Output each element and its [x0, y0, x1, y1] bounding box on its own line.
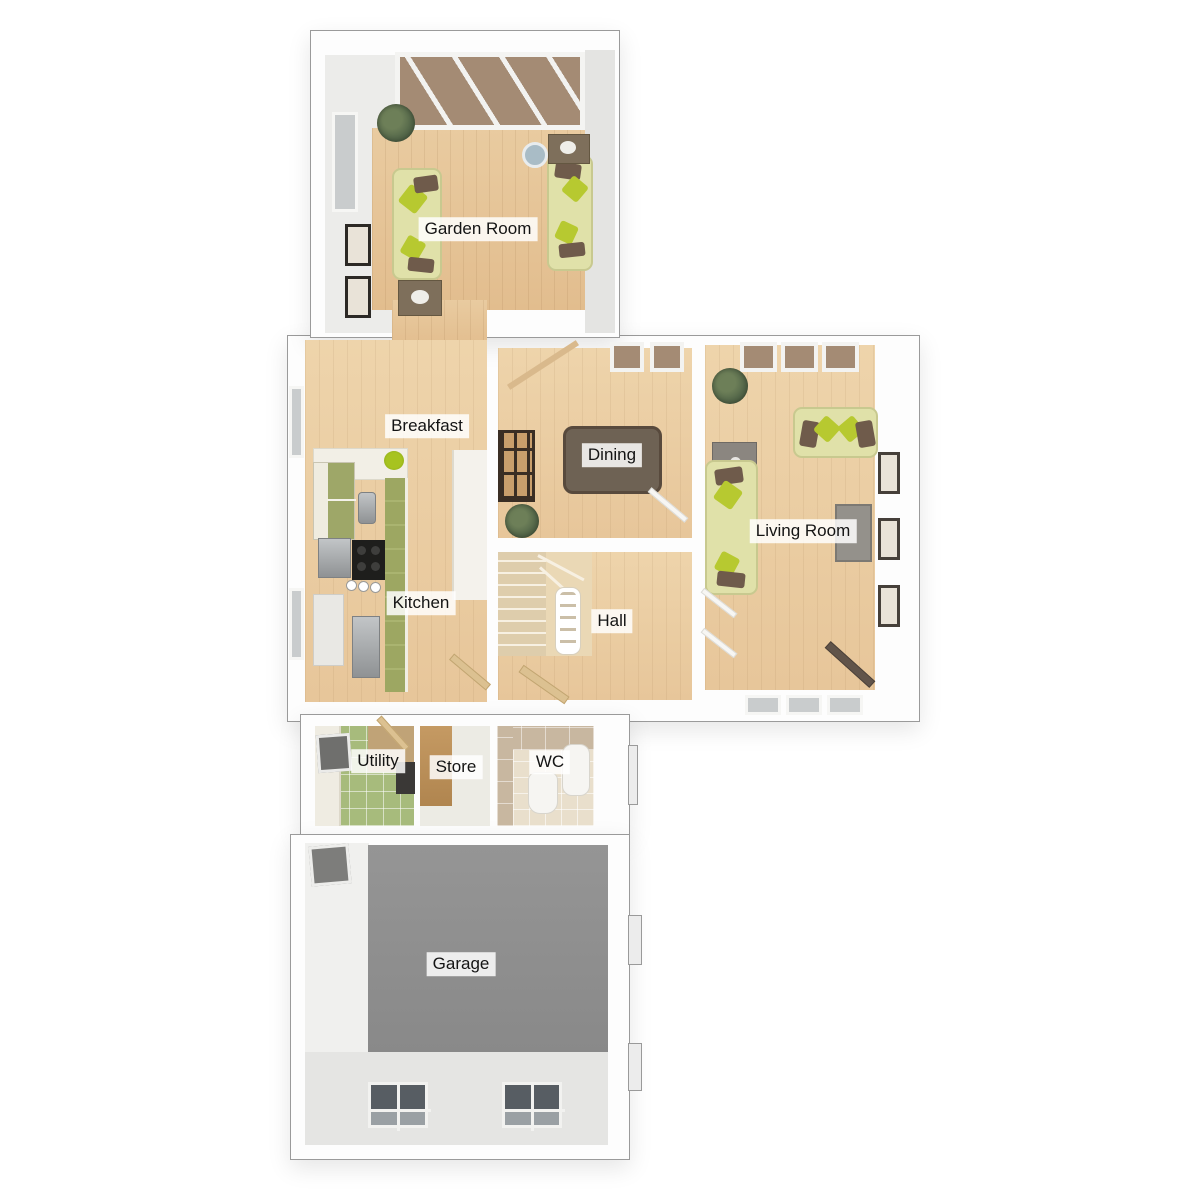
dining-roof-window: [610, 342, 644, 372]
floorplan-canvas: Garden Room Breakfast Dining Living Room…: [0, 0, 1200, 1200]
door-rail: [371, 1109, 431, 1112]
kitchen-unit-run: [385, 478, 408, 692]
living-wall-picture-frame: [878, 518, 900, 560]
stair-railing: [556, 588, 580, 654]
living-bottom-window: [827, 695, 863, 715]
burner: [357, 546, 366, 555]
living-bottom-window: [745, 695, 781, 715]
breakfast-left-window: [289, 386, 304, 458]
sofa-cushion: [407, 257, 434, 274]
garden-wall-picture-frame: [345, 276, 371, 318]
wc-outer-step: [628, 745, 638, 805]
garden-room-skylight: [395, 52, 585, 130]
wc-toilet: [528, 772, 558, 814]
kitchen-island: [452, 450, 487, 600]
sofa-cushion: [558, 242, 585, 259]
staircase: [498, 552, 592, 656]
kitchen-fruit-bowl: [384, 451, 404, 470]
garage-window: [308, 843, 351, 886]
living-roof-window: [822, 342, 859, 372]
living-plant: [712, 368, 748, 404]
kitchen-dishwasher: [352, 616, 380, 678]
sofa-cushion: [413, 174, 439, 193]
burner: [371, 546, 380, 555]
room-label-garage: Garage: [427, 952, 496, 976]
living-sofa-top: [793, 407, 878, 458]
table-plate: [411, 290, 429, 304]
utility-window: [316, 733, 353, 773]
garden-side-table-top: [548, 134, 590, 164]
kitchen-left-window: [289, 588, 304, 660]
garage-floor: [368, 845, 608, 1052]
living-wall-picture-frame: [878, 585, 900, 627]
dining-window-grid: [498, 430, 535, 502]
garage-door-window: [368, 1082, 428, 1128]
kitchen-oven: [318, 538, 351, 578]
garden-side-table-bottom: [398, 280, 442, 316]
garage-buttress-bottom: [628, 1043, 642, 1091]
room-label-dining: Dining: [582, 443, 642, 467]
door-rail: [505, 1109, 565, 1112]
kitchen-base-cabinet: [313, 594, 344, 666]
table-plate: [560, 141, 576, 154]
living-roof-window: [740, 342, 777, 372]
sofa-pillow: [561, 175, 589, 203]
sofa-cushion: [716, 571, 745, 589]
garage-apron-floor: [305, 1052, 608, 1145]
door-mullion: [531, 1085, 534, 1131]
garage-buttress-top: [628, 915, 642, 965]
burner: [357, 562, 366, 571]
sofa-cushion: [855, 420, 876, 449]
kitchen-cooktop: [352, 540, 385, 580]
cooker-knob: [358, 581, 369, 592]
room-label-store: Store: [430, 755, 483, 779]
room-label-garden-room: Garden Room: [419, 217, 538, 241]
living-wall-picture-frame: [878, 452, 900, 494]
garden-ceiling-lamp: [522, 142, 548, 168]
burner: [371, 562, 380, 571]
room-label-breakfast: Breakfast: [385, 414, 469, 438]
living-roof-window: [781, 342, 818, 372]
cabinet-shelf-line: [327, 499, 356, 501]
living-bottom-window: [786, 695, 822, 715]
door-mullion: [397, 1085, 400, 1131]
dining-roof-window: [650, 342, 684, 372]
wc-wall-tiles-side: [497, 726, 513, 826]
room-label-living-room: Living Room: [750, 519, 857, 543]
sofa-pillow: [554, 220, 579, 245]
cooker-knob: [370, 582, 381, 593]
garden-room-left-window: [332, 112, 358, 212]
garage-door-window: [502, 1082, 562, 1128]
dining-plant: [505, 504, 539, 538]
room-label-kitchen: Kitchen: [387, 591, 456, 615]
room-label-hall: Hall: [591, 609, 632, 633]
garden-room-sofa-right: [547, 155, 593, 271]
kitchen-kettle: [358, 492, 376, 524]
room-label-utility: Utility: [351, 749, 405, 773]
garden-room-plant: [377, 104, 415, 142]
room-label-wc: WC: [530, 750, 570, 774]
cooker-knob: [346, 580, 357, 591]
kitchen-wall-cabinet: [313, 462, 355, 540]
garden-wall-picture-frame: [345, 224, 371, 266]
stair-treads: [498, 560, 546, 656]
